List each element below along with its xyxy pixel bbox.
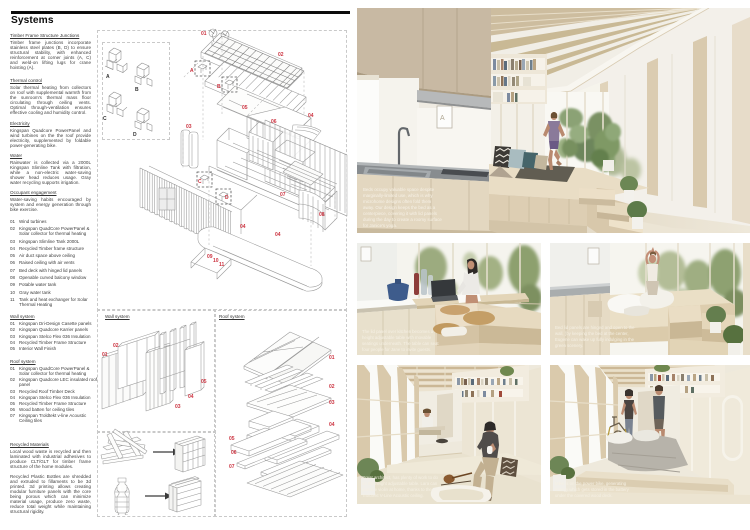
svg-text:The lid panel over kitchen bec: The lid panel over kitchen becomes a: [362, 329, 434, 334]
svg-text:05: 05: [229, 436, 235, 442]
svg-text:09: 09: [207, 254, 213, 260]
svg-text:C: C: [103, 116, 107, 122]
svg-text:for Janice's yoga.: for Janice's yoga.: [363, 223, 397, 228]
svg-text:04: 04: [275, 232, 281, 238]
svg-text:D: D: [225, 195, 229, 201]
svg-text:05: 05: [242, 105, 248, 111]
svg-text:06: 06: [231, 450, 237, 456]
svg-text:02: 02: [329, 384, 335, 390]
svg-text:05: 05: [201, 379, 207, 385]
svg-text:away. Our design keeps the bed: away. Our design keeps the bed as a: [363, 205, 436, 210]
svg-text:01: 01: [329, 355, 335, 361]
svg-text:marginally-limited use, which: marginally-limited use, which is why: [363, 193, 433, 198]
svg-text:Beds occupy valuable space des: Beds occupy valuable space despite: [363, 187, 435, 192]
svg-text:Bed lid panels are hinged and: Bed lid panels are hinged and open to th…: [555, 325, 635, 330]
svg-text:01: 01: [201, 31, 207, 37]
svg-text:04: 04: [308, 113, 314, 119]
svg-text:A: A: [106, 74, 110, 80]
svg-text:microhome designs often fold t: microhome designs often fold them: [363, 199, 432, 204]
svg-text:Troldtekt V-Line Acoustic ceil: Troldtekt V-Line Acoustic ceiling.: [362, 493, 424, 498]
svg-text:04: 04: [240, 224, 246, 230]
svg-text:D: D: [133, 132, 137, 138]
svg-text:11: 11: [219, 262, 225, 268]
svg-text:four people for Jane to invite: four people for Jane to invite guests.: [362, 347, 431, 352]
svg-text:07: 07: [229, 464, 235, 470]
svg-text:Great architect, has plenty of: Great architect, has plenty of work to d…: [362, 475, 439, 480]
svg-text:Mike is on the power bike, gen: Mike is on the power bike, generating: [555, 481, 627, 486]
svg-text:Eugene can wake up fully indul: Eugene can wake up fully indulging in th…: [555, 337, 635, 342]
svg-text:02: 02: [113, 343, 119, 349]
svg-text:practice violin at home, thank: practice violin at home, thanks to the: [362, 487, 432, 492]
svg-text:03: 03: [175, 404, 181, 410]
svg-text:seatings underneath. The table: seatings underneath. The table can seat: [362, 341, 439, 346]
svg-text:07: 07: [280, 192, 286, 198]
svg-text:green scenery.: green scenery.: [555, 343, 583, 348]
svg-text:B: B: [217, 84, 221, 90]
svg-text:B: B: [135, 87, 139, 93]
svg-text:04: 04: [188, 394, 194, 400]
svg-text:04: 04: [329, 422, 335, 428]
svg-text:height adjustable table with m: height adjustable table with movable: [362, 335, 432, 340]
svg-text:02: 02: [278, 52, 284, 58]
svg-text:10: 10: [213, 258, 219, 264]
svg-text:A: A: [440, 115, 445, 122]
svg-text:centerpiece, covering it with: centerpiece, covering it with lid panels: [363, 211, 438, 216]
svg-text:C: C: [198, 179, 202, 185]
svg-text:during the day to create a roo: during the day to create a roomy surface: [363, 217, 442, 222]
svg-text:03: 03: [329, 400, 335, 406]
svg-text:01: 01: [102, 352, 108, 358]
svg-text:08: 08: [319, 212, 325, 218]
svg-text:A: A: [190, 68, 194, 74]
svg-text:energy which gets stored in th: energy which gets stored in the battery: [555, 487, 630, 492]
svg-text:06: 06: [271, 119, 277, 125]
svg-text:wall, (by keeping the bed at t: wall, (by keeping the bed at the center,: [555, 331, 629, 336]
svg-text:on the height adjustable table: on the height adjustable table. Lara can: [362, 481, 438, 486]
svg-text:under the covered wood deck.: under the covered wood deck.: [555, 493, 613, 498]
svg-text:03: 03: [186, 124, 192, 130]
